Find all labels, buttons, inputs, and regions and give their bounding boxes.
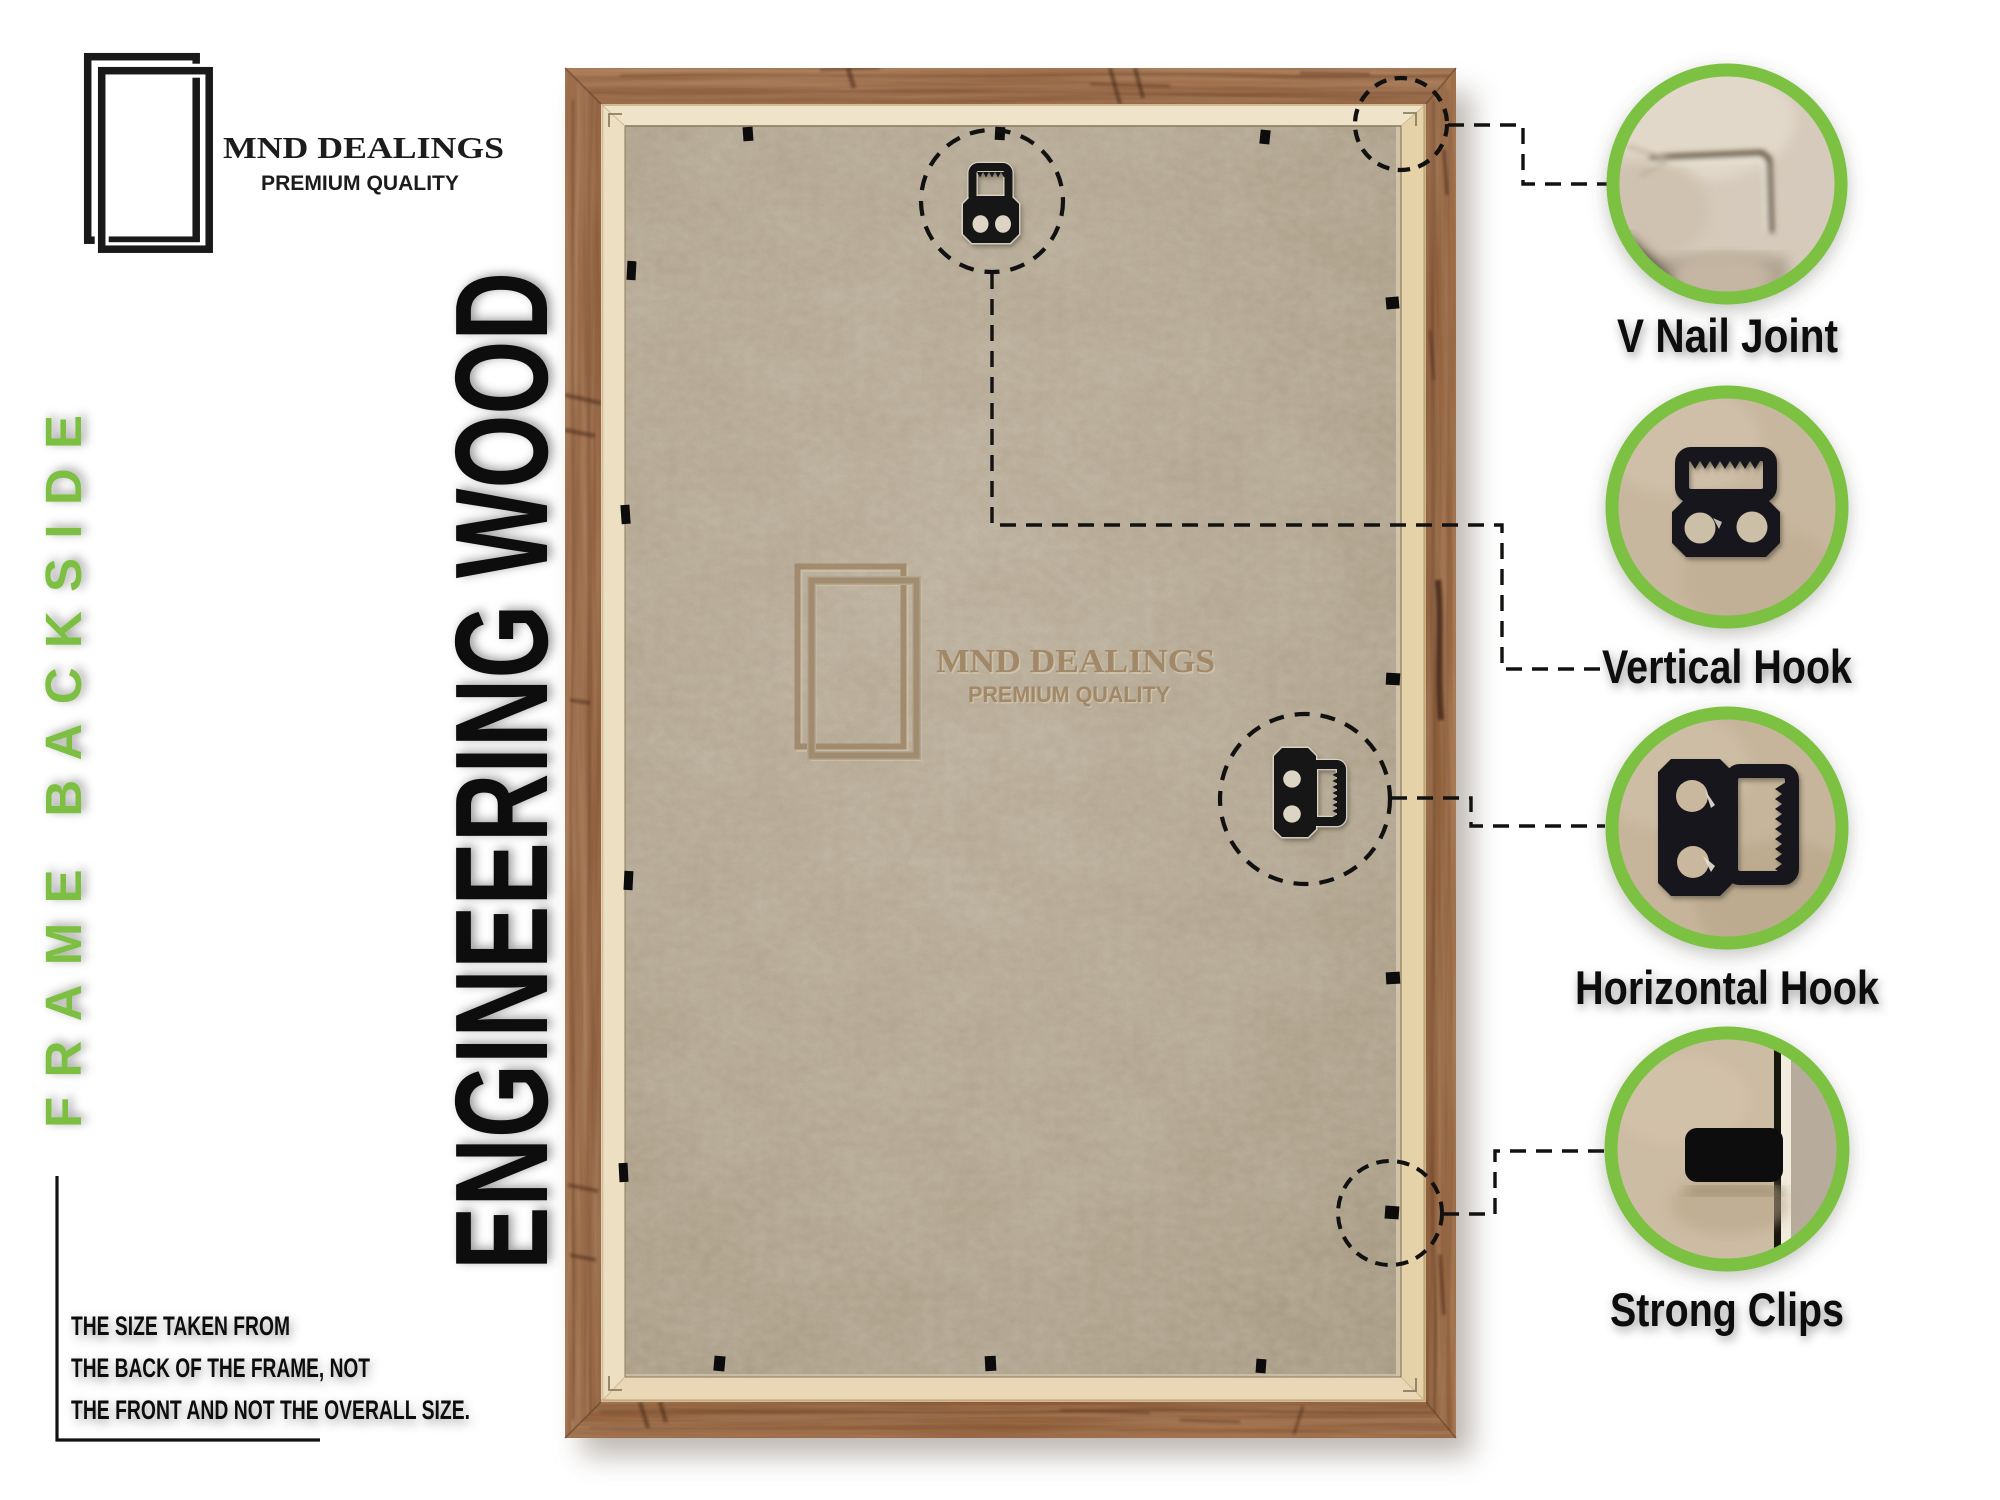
svg-text:Strong Clips: Strong Clips xyxy=(1610,1283,1844,1336)
svg-text:Vertical Hook: Vertical Hook xyxy=(1602,640,1853,693)
svg-text:MND DEALINGS: MND DEALINGS xyxy=(223,130,504,165)
svg-text:MND DEALINGS: MND DEALINGS xyxy=(936,643,1215,680)
svg-text:Horizontal Hook: Horizontal Hook xyxy=(1575,961,1880,1014)
svg-text:V Nail Joint: V Nail Joint xyxy=(1617,309,1838,362)
svg-text:FRAME BACKSIDE: FRAME BACKSIDE xyxy=(35,415,92,1128)
svg-text:THE BACK OF THE FRAME, NOT: THE BACK OF THE FRAME, NOT xyxy=(71,1353,370,1383)
svg-text:PREMIUM QUALITY: PREMIUM QUALITY xyxy=(261,171,459,195)
svg-text:ENGINEERING WOOD: ENGINEERING WOOD xyxy=(428,272,575,1270)
svg-text:THE FRONT AND NOT THE OVERALL: THE FRONT AND NOT THE OVERALL SIZE. xyxy=(71,1395,470,1425)
svg-text:THE SIZE TAKEN FROM: THE SIZE TAKEN FROM xyxy=(71,1311,290,1341)
svg-text:PREMIUM QUALITY: PREMIUM QUALITY xyxy=(968,682,1170,707)
